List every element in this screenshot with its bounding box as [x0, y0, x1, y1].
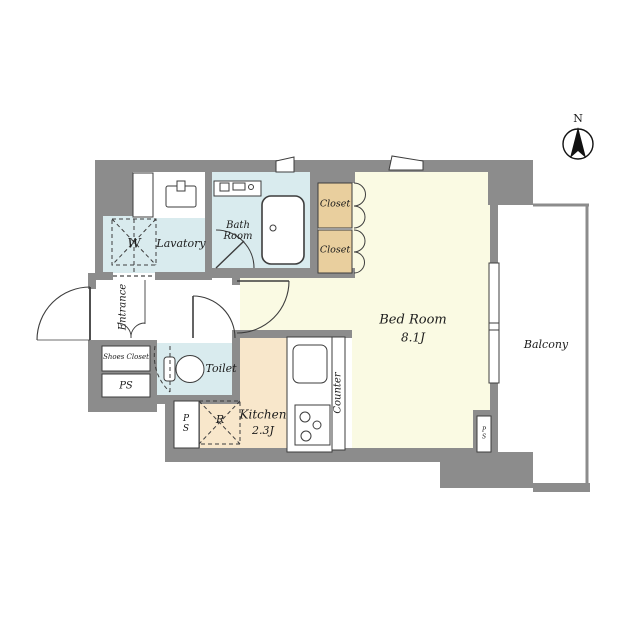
bedroom-label: Bed Room	[379, 314, 446, 329]
bath-vanity-icon	[214, 181, 261, 196]
floor-plan: W Lavatory Bath Room Closet Closet Bed R…	[0, 0, 640, 640]
closet-lower-label: Closet	[320, 246, 350, 257]
north-label: N	[573, 113, 583, 125]
hall-entrance-area	[96, 280, 232, 340]
floor-plan-drawing	[0, 0, 640, 640]
kitchen-sink-icon	[293, 345, 327, 383]
shoes-closet-label: Shoes Closet	[103, 354, 149, 362]
vent-west-icon	[276, 157, 294, 172]
lavatory-recess	[133, 173, 153, 217]
entrance-label: Entrance	[117, 284, 128, 330]
entrance-door-icon	[37, 287, 90, 340]
counter-label: Counter	[332, 372, 343, 413]
north-compass-icon	[563, 127, 593, 159]
balcony-label: Balcony	[524, 339, 568, 351]
toilet-label: Toilet	[205, 363, 236, 375]
refrigerator-label: R	[216, 414, 224, 426]
pipe-space-balcony-label: P S	[482, 427, 486, 440]
kitchen-size-label: 2.3J	[252, 425, 274, 437]
washing-machine-label: W	[127, 238, 140, 253]
pipe-space-entrance-label: PS	[119, 380, 133, 391]
closet-upper-label: Closet	[320, 200, 350, 211]
lavatory-label: Lavatory	[156, 238, 205, 250]
bedroom-size-label: 8.1J	[401, 331, 425, 344]
bathtub-icon	[262, 196, 304, 264]
bedroom-area-west-pocket	[240, 277, 352, 333]
vent-east-icon	[389, 156, 423, 170]
stove-icon	[295, 405, 330, 445]
pipe-space-kitchen-label: P S	[183, 414, 189, 434]
kitchen-label: Kitchen	[240, 408, 287, 421]
bathroom-label: Bath Room	[223, 220, 252, 242]
